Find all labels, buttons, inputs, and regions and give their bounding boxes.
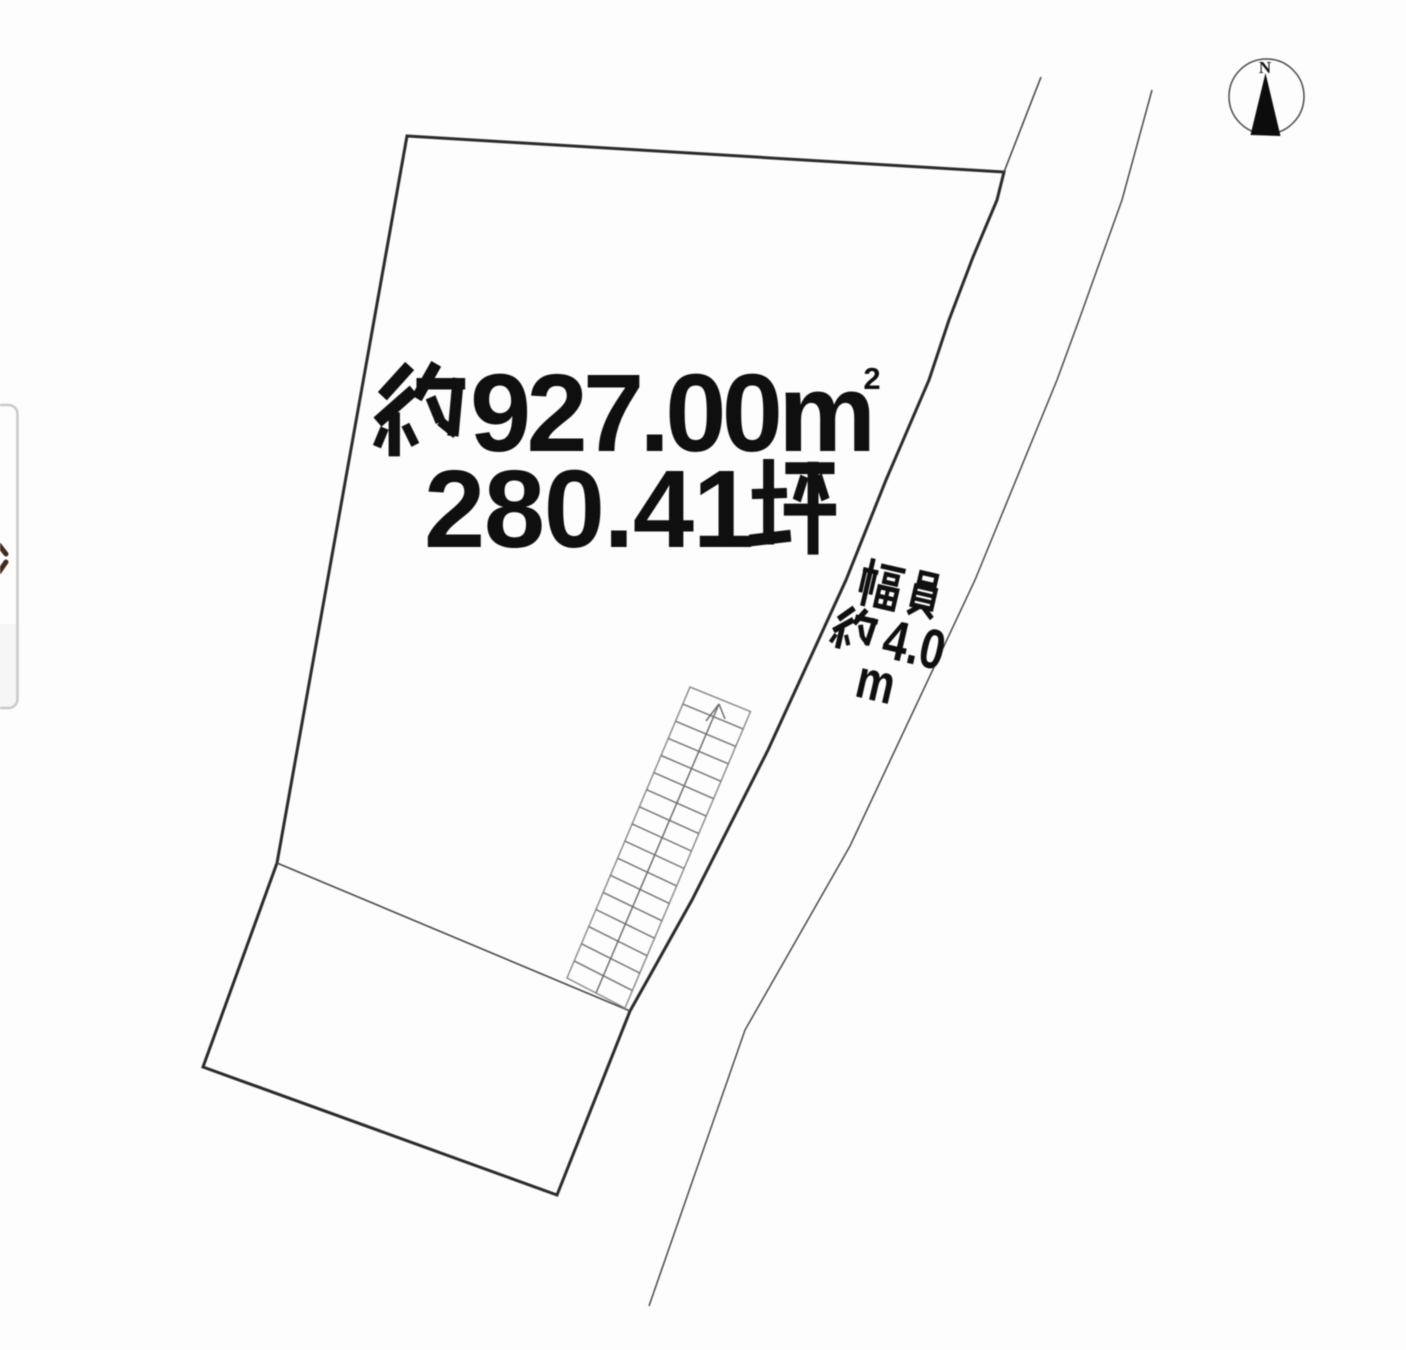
svg-text:2: 2	[863, 361, 880, 396]
svg-text:280.41: 280.41	[424, 448, 754, 571]
svg-text:N: N	[1259, 58, 1272, 77]
svg-text:m: m	[851, 647, 902, 716]
